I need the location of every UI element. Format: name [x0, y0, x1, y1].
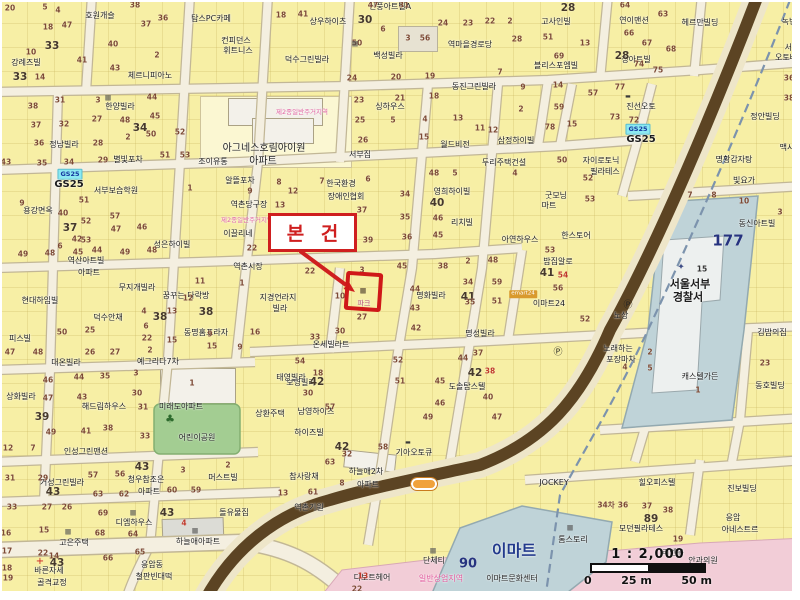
scale-ratio: 1 : 2,000 — [584, 547, 712, 562]
scale-bar — [590, 563, 706, 573]
border-top — [0, 0, 800, 2]
scale-tick: 50 m — [681, 574, 712, 587]
scale-indicator: 1 : 2,000 0 25 m 50 m — [584, 547, 712, 587]
subject-callout-label: 본 건 — [282, 219, 344, 246]
subject-callout: 본 건 — [268, 213, 357, 252]
scale-ticks: 0 25 m 50 m — [584, 574, 712, 587]
scale-tick: 0 — [584, 574, 592, 587]
subject-parcel-outline — [344, 271, 384, 312]
scale-bar-white — [592, 565, 648, 571]
scale-tick: 25 m — [621, 574, 652, 587]
border-right — [792, 0, 800, 600]
border-left — [0, 0, 2, 600]
scale-bar-black — [648, 565, 704, 571]
subject-arrow — [300, 251, 346, 285]
border-bottom — [0, 591, 800, 600]
cadastral-map: 호원개슬신풍아트빌A탐스PC카페컨피던스휘트니스강례즈빌체르니피아노상우하이츠덕… — [0, 0, 800, 600]
annotation-layer — [0, 0, 800, 600]
